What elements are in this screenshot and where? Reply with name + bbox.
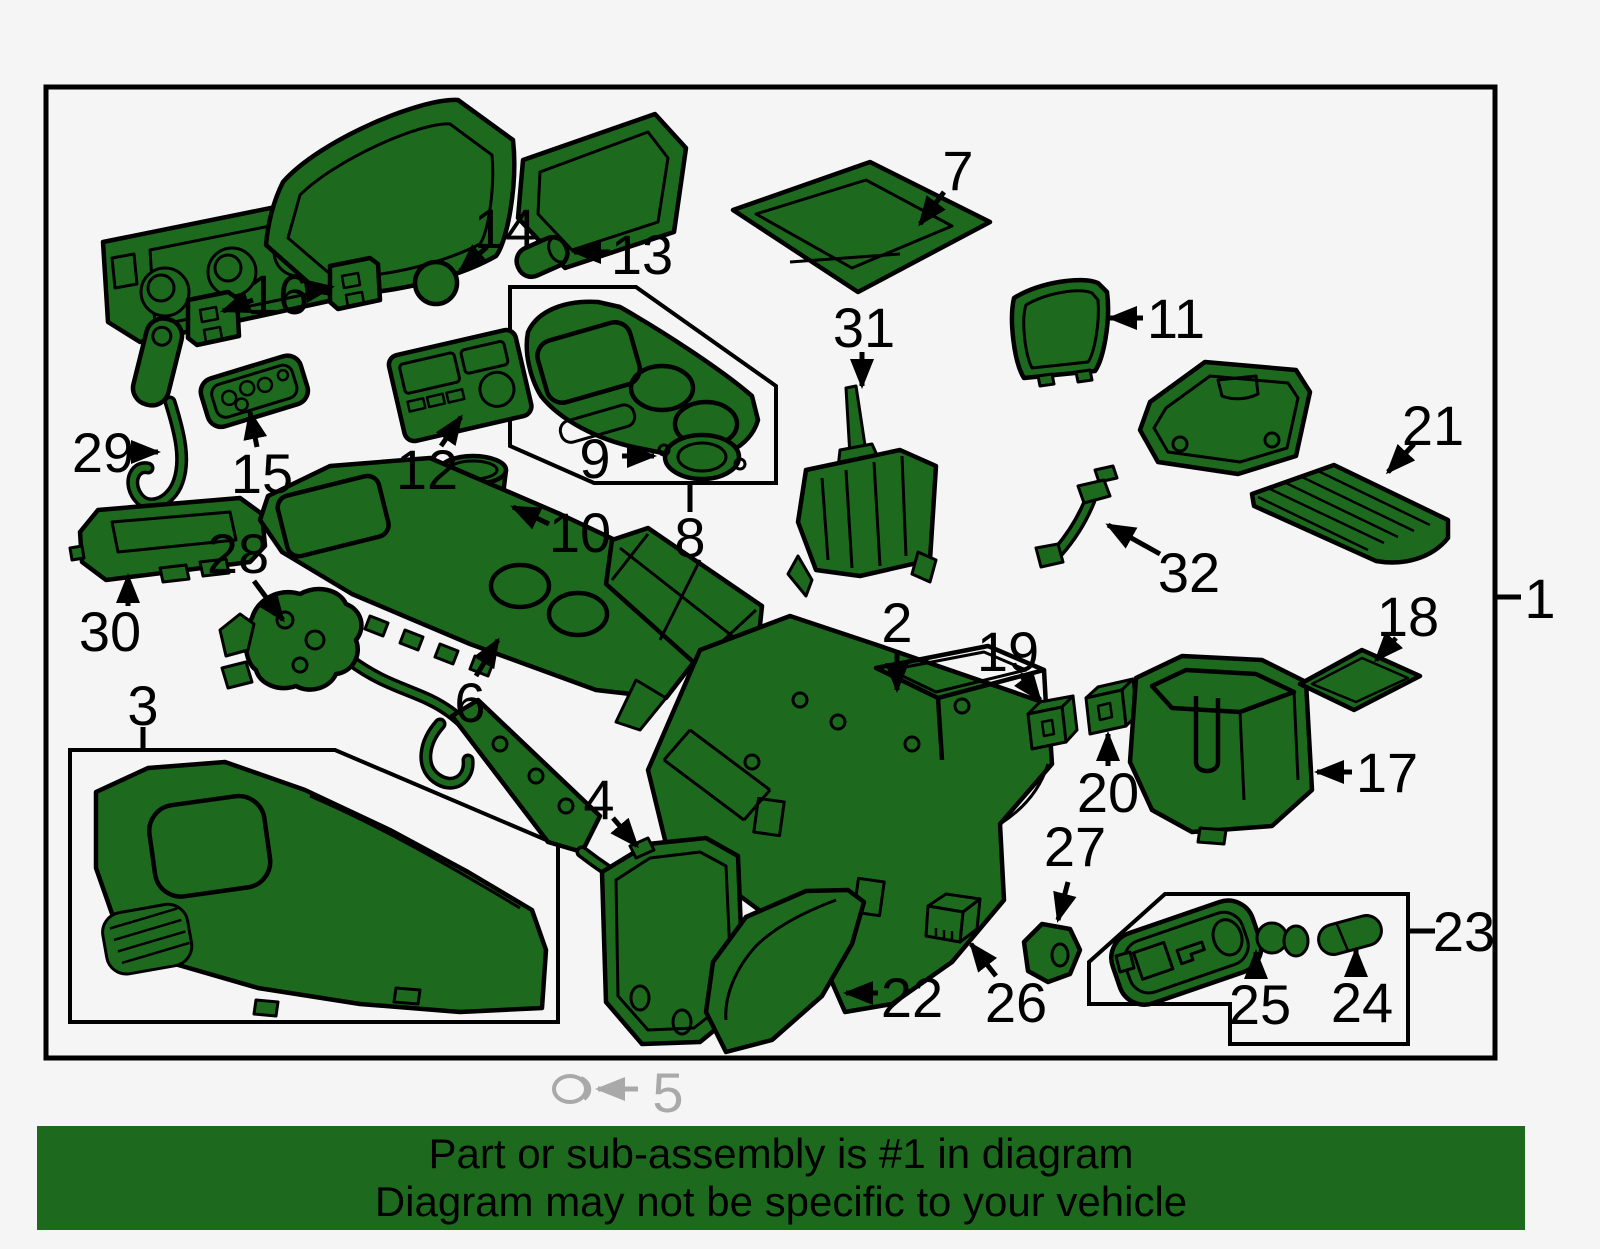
part-14-knob — [415, 262, 457, 304]
part-24-bulb — [1315, 912, 1385, 958]
part-armrest-lid — [1140, 362, 1310, 474]
callout-17: 17 — [1356, 741, 1418, 804]
part-20-switch — [1086, 679, 1137, 734]
callout-27-arrow — [1058, 882, 1068, 920]
part-3-side-trim-panel — [96, 762, 546, 1016]
callout-15: 15 — [231, 442, 293, 505]
callout-25: 25 — [1229, 973, 1291, 1036]
callout-7: 7 — [942, 139, 973, 202]
callout-2: 2 — [881, 591, 912, 654]
part-17-storage-bin — [1130, 656, 1312, 844]
callout-31: 31 — [833, 296, 895, 359]
callout-16: 16 — [247, 263, 309, 326]
part-9-speaker-seal — [659, 435, 745, 479]
exploded-parts-diagram: 1 2 3 4 5 6 7 8 9 10 11 12 13 14 15 16 1… — [0, 0, 1600, 1249]
parts-catalog-figure: 1 2 3 4 5 6 7 8 9 10 11 12 13 14 15 16 1… — [0, 0, 1600, 1249]
callout-8: 8 — [674, 506, 705, 569]
callout-29: 29 — [72, 421, 134, 484]
callout-22: 22 — [881, 966, 943, 1029]
notice-line-2: Diagram may not be specific to your vehi… — [375, 1179, 1187, 1225]
callout-19: 19 — [977, 620, 1039, 683]
part-25-socket — [1257, 923, 1308, 956]
notice-banner: Part or sub-assembly is #1 in diagram Di… — [37, 1126, 1525, 1230]
callout-28: 28 — [207, 522, 269, 585]
part-18-bin-mat — [1300, 650, 1420, 710]
callout-13: 13 — [611, 223, 673, 286]
callout-32-arrow — [1108, 525, 1160, 554]
part-5-grommet — [554, 1076, 589, 1102]
callout-5: 5 — [652, 1061, 683, 1124]
part-8-cupholder-trim — [527, 302, 758, 459]
notice-line-1: Part or sub-assembly is #1 in diagram — [429, 1131, 1134, 1177]
part-31-shifter-assembly — [788, 386, 936, 596]
callout-12: 12 — [396, 438, 458, 501]
callout-23: 23 — [1433, 900, 1495, 963]
callout-3: 3 — [127, 674, 158, 737]
callout-1: 1 — [1524, 567, 1555, 630]
callout-18: 18 — [1377, 585, 1439, 648]
callout-4: 4 — [583, 768, 614, 831]
callout-24: 24 — [1331, 971, 1393, 1034]
callout-11: 11 — [1147, 287, 1205, 350]
callout-10: 10 — [549, 501, 611, 564]
callout-32: 32 — [1158, 541, 1220, 604]
part-11-end-panel — [1012, 280, 1108, 386]
callout-14: 14 — [474, 197, 536, 260]
callout-4-arrow — [613, 818, 637, 846]
callout-30: 30 — [79, 600, 141, 663]
callout-6: 6 — [454, 671, 485, 734]
callout-27: 27 — [1044, 815, 1106, 878]
part-32-wire-harness — [1036, 466, 1117, 567]
part-21-rubber-mat — [1252, 465, 1448, 562]
part-16-switch-right — [330, 258, 380, 309]
callout-26: 26 — [985, 971, 1047, 1034]
part-15-switch-panel — [197, 352, 311, 430]
part-16-switch-left — [188, 292, 239, 345]
callout-9: 9 — [579, 427, 610, 490]
callout-21: 21 — [1402, 394, 1464, 457]
